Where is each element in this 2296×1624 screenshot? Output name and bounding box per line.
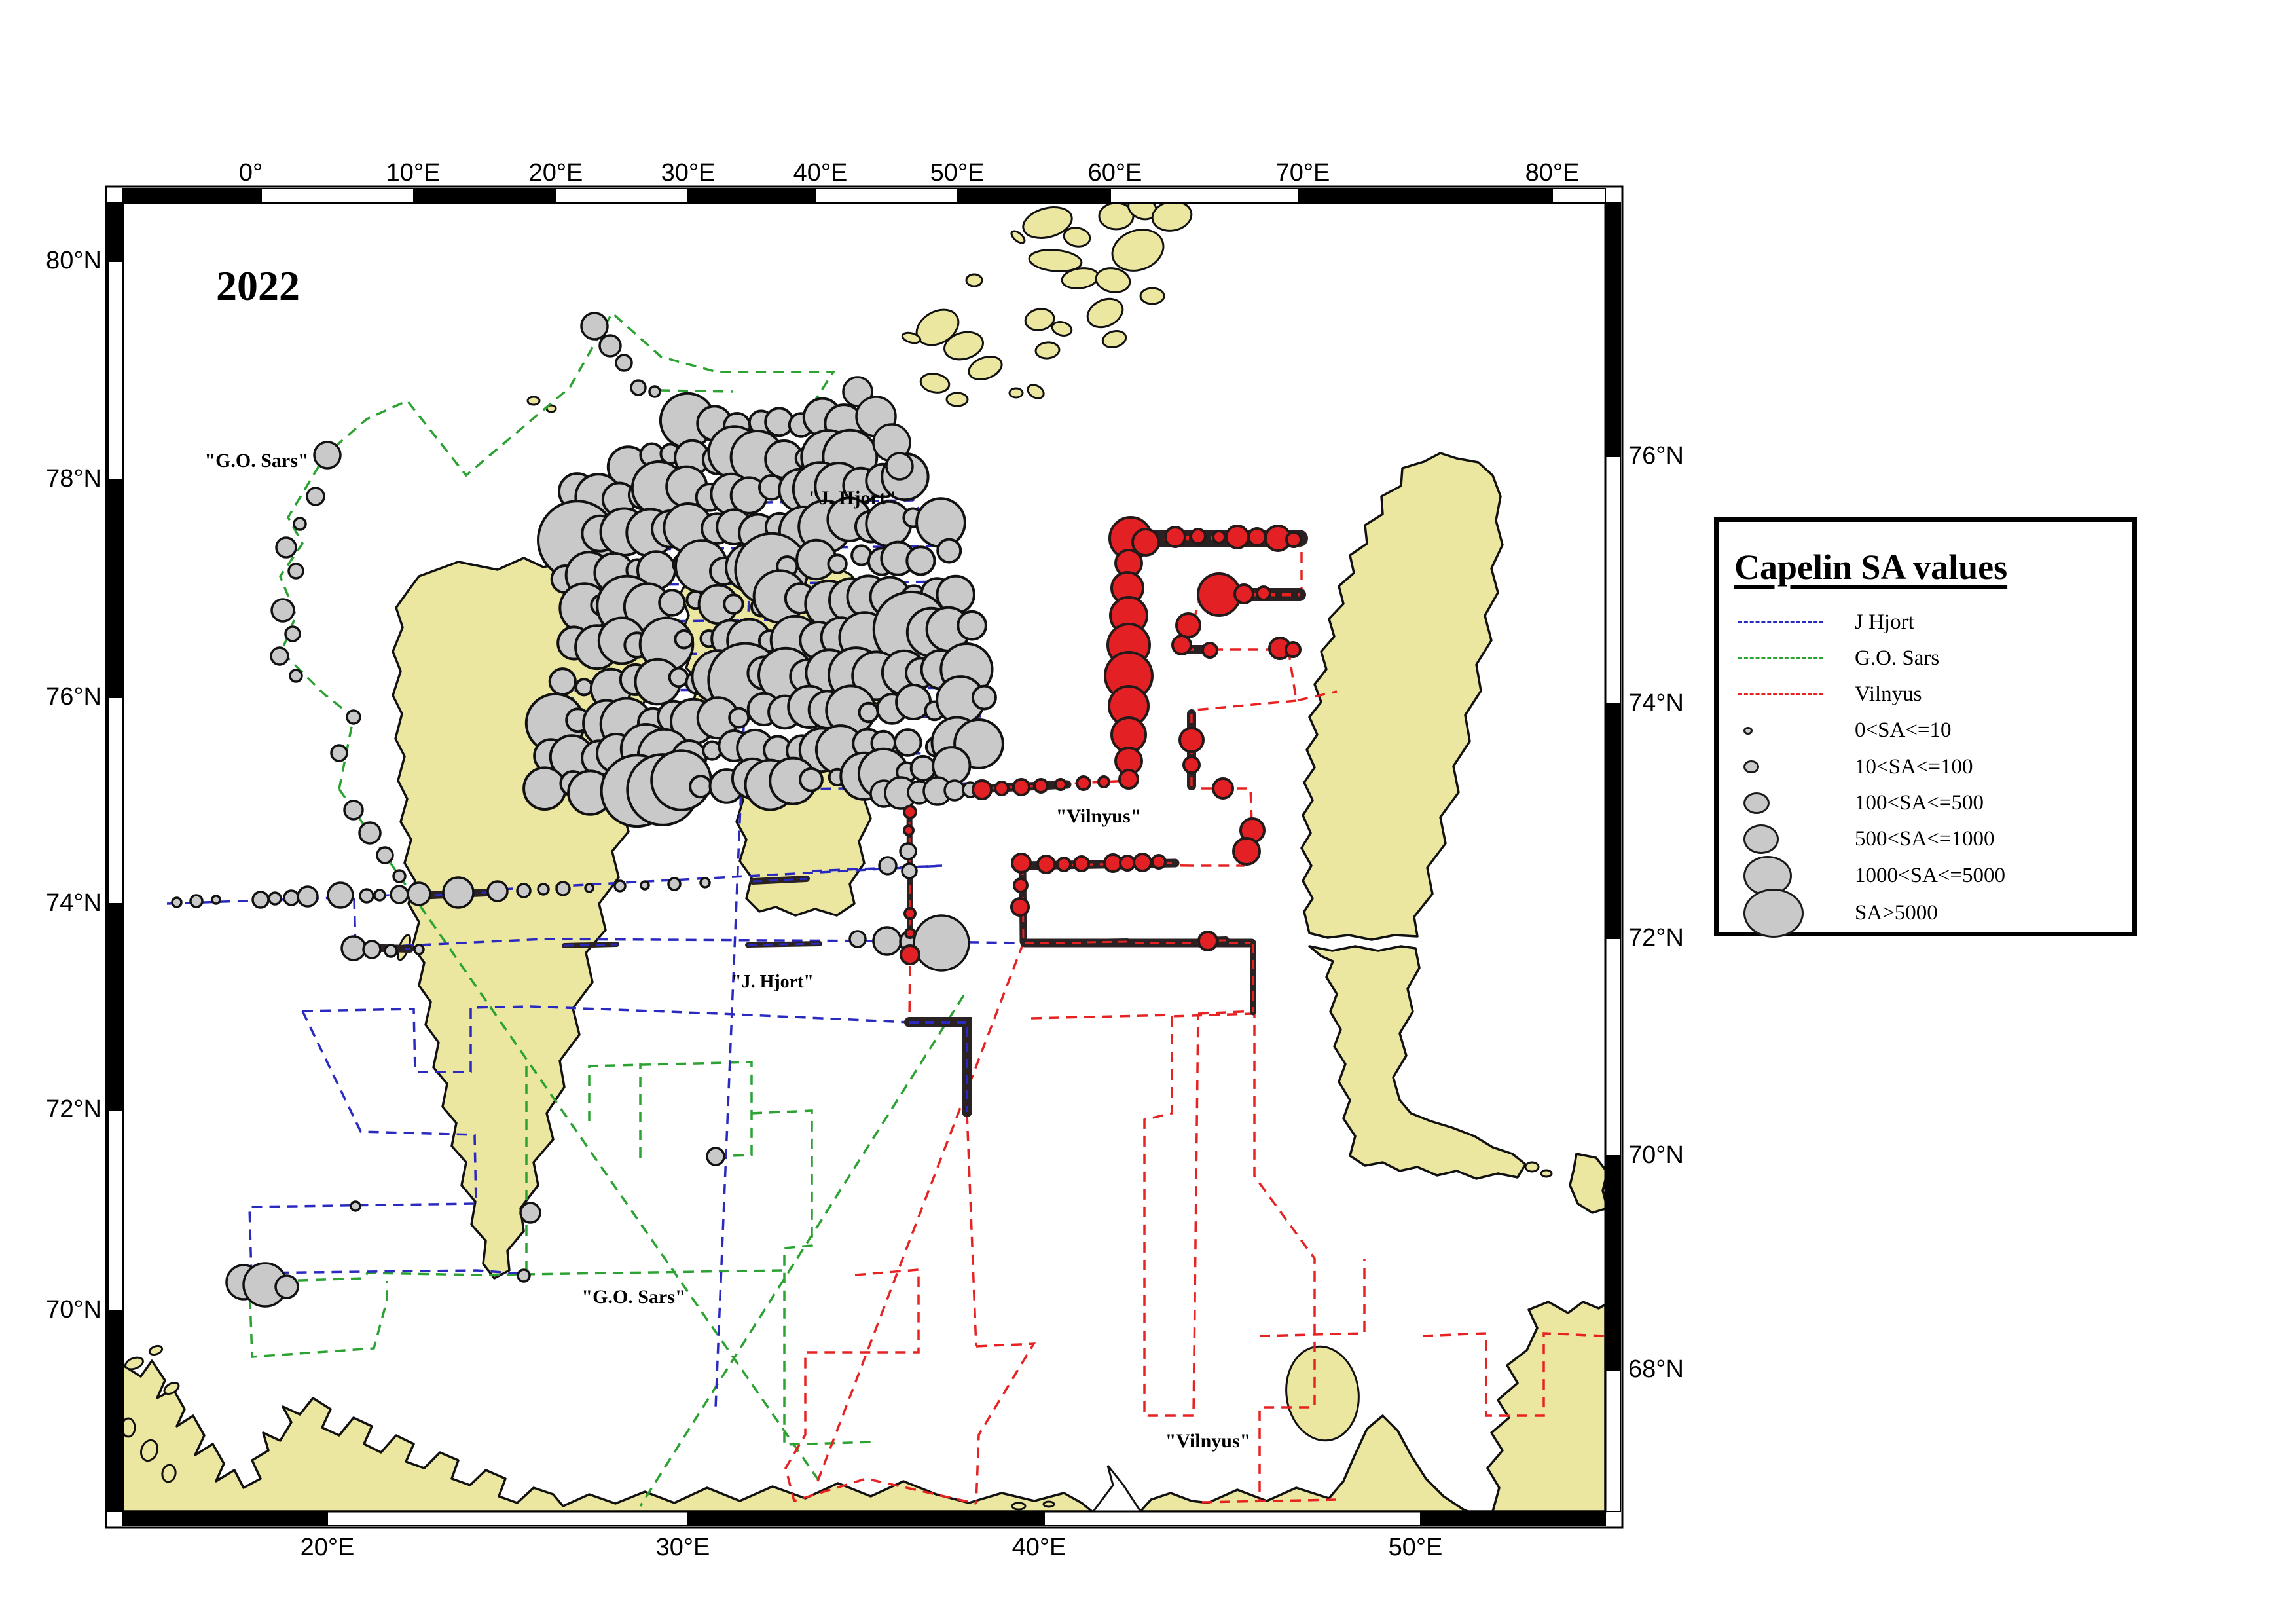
axis-tick-left-78°N: 78°N [46,465,101,493]
sa-bubble-sample [1738,760,1836,773]
sa-bubble [690,776,711,797]
sa-bubble-gray [307,488,324,505]
land-fjl-12 [966,274,982,286]
sa-bubble-red [995,782,1008,795]
legend-item-label: 500<SA<=1000 [1855,827,1995,851]
sa-bubble-red [1077,777,1090,790]
axis-tick-top-80°E: 80°E [1525,159,1580,187]
axis-tick-bottom-20°E: 20°E [301,1534,355,1562]
sa-bubble-gray [581,313,608,339]
axis-tick-left-70°N: 70°N [46,1296,101,1324]
sa-bubble-gray [538,884,549,895]
sa-bubble-gray [850,931,866,947]
sa-bubble-red [1213,531,1225,543]
sa-bubble [659,590,684,615]
sa-bubble-sample [1738,792,1836,814]
sa-bubble [917,498,965,547]
axis-tick-top-70°E: 70°E [1276,159,1330,187]
sa-bubble-gray [631,380,646,395]
sa-bubble-red [1173,636,1191,654]
sa-bubble-red [1199,932,1217,950]
land-isl-n-svalbard-1 [528,397,539,405]
sa-bubble-gray [488,881,507,901]
sa-bubble-red [905,929,915,938]
sa-bubble [524,767,566,809]
land-coast-islet-1 [1012,1503,1025,1509]
sa-bubble [670,669,688,687]
sa-bubble-gray [298,887,318,906]
sa-bubble-red [1120,856,1135,870]
sa-bubble-red [1203,643,1217,657]
axis-tick-left-74°N: 74°N [46,889,101,917]
sa-bubble-gray [879,857,896,874]
year-label: 2022 [216,262,300,310]
sa-bubble-gray [600,335,621,356]
legend-item-sa-2: 10<SA<=100 [1738,749,2132,785]
sa-bubble-gray [272,599,294,621]
sa-bubble [550,669,575,694]
axis-tick-right-72°N: 72°N [1628,924,1684,952]
sa-bubble-gray [902,864,917,878]
sa-bubble-gray [276,1276,298,1298]
axis-tick-top-0°: 0° [239,159,263,187]
sa-bubble-red [1099,777,1109,787]
vessel-label-5: "Vilnyus" [1165,1430,1251,1452]
sa-bubble-gray [641,881,649,889]
sa-bubble-gray [347,710,360,724]
sa-bubble-red [1014,879,1027,892]
sa-bubble-red [1180,728,1203,752]
axis-tick-right-70°N: 70°N [1628,1141,1684,1170]
sa-bubble-gray [363,941,380,958]
sa-bubble-red [1233,838,1260,864]
sa-bubble-gray [360,889,373,902]
sa-bubble-red [973,781,991,799]
axis-tick-top-40°E: 40°E [793,159,848,187]
sa-bubble-gray [900,843,916,859]
sa-bubble-gray [615,881,625,891]
sa-bubble-red [1011,898,1029,915]
sa-bubble-gray [377,847,393,863]
vessel-label-0: "G.O. Sars" [204,450,308,472]
sa-bubble-gray [212,896,220,904]
jhjort-line-sample [1738,621,1836,623]
gosars-line-sample [1738,657,1836,659]
axis-tick-bottom-50°E: 50°E [1389,1534,1443,1562]
sa-bubble-gray [253,892,268,908]
sa-bubble [828,555,846,572]
axis-tick-left-72°N: 72°N [46,1096,101,1124]
sa-bubble [938,540,960,563]
sa-bubble-red [1176,614,1200,637]
land-nz-tail-islet-1 [1525,1162,1539,1172]
sa-bubble-red [1226,526,1248,548]
legend-item-label: 10<SA<=100 [1855,755,1973,779]
legend-item-label: 0<SA<=10 [1855,718,1952,743]
land-nz-tail-islet-2 [1541,1170,1552,1177]
legend-item-label: J Hjort [1855,610,1914,635]
sa-bubble-gray [701,878,710,887]
sa-bubble-red [901,946,919,964]
legend-item-label: 1000<SA<=5000 [1855,864,2005,888]
axis-tick-left-80°N: 80°N [46,247,101,275]
axis-tick-bottom-40°E: 40°E [1012,1534,1066,1562]
legend-title: Capelin SA values [1734,547,2117,587]
axis-tick-right-76°N: 76°N [1628,442,1684,470]
sa-bubble-red [1013,779,1029,795]
sa-bubble-gray [668,878,680,890]
sa-bubble-gray [374,890,385,900]
sa-bubble-gray [331,745,347,761]
sa-bubble-gray [649,386,660,397]
sa-bubble-gray [517,884,530,897]
sa-bubble-gray [290,670,302,682]
vessel-label-1: "J. Hjort" [809,487,897,509]
axis-tick-top-30°E: 30°E [661,159,716,187]
sa-bubble-gray [414,945,424,954]
sa-bubble [973,686,996,709]
sa-bubble-gray [344,801,363,819]
sa-bubble-gray [556,882,570,895]
sa-bubble-gray [443,877,473,908]
legend-item-gosars: G.O. Sars [1738,640,2132,676]
sa-bubble-gray [269,893,281,904]
legend-item-label: SA>5000 [1855,901,1938,925]
legend-item-label: Vilnyus [1855,682,1922,707]
sa-bubble-gray [342,936,365,960]
sa-bubble [958,612,986,640]
vilnyus-line-sample [1738,693,1836,695]
sa-bubble-red [904,806,916,818]
sa-bubble-red [1034,779,1048,792]
sa-bubble-gray [284,891,299,905]
legend-item-jhjort: J Hjort [1738,604,2132,640]
axis-tick-top-20°E: 20°E [529,159,583,187]
sa-bubble-gray [285,627,300,641]
sa-bubble-gray [945,781,964,800]
sa-bubble-gray [393,870,405,882]
sa-bubble-gray [408,883,430,905]
axis-tick-top-10°E: 10°E [386,159,441,187]
land-coast-islet-2 [1044,1502,1054,1507]
sa-bubble-red [1257,587,1270,600]
sa-bubble-red [1152,855,1165,868]
axis-tick-top-50°E: 50°E [930,159,985,187]
track-core-17 [1087,942,1127,942]
sa-bubble-gray [914,915,969,970]
sa-bubble-gray [518,1270,530,1282]
sa-bubble-gray [271,648,288,665]
sa-bubble-gray [289,564,303,578]
sa-bubble [800,769,822,791]
sa-bubble-red [1235,585,1253,603]
sa-bubble [907,547,934,574]
sa-bubble [675,631,693,648]
sa-bubble-gray [873,927,901,955]
vessel-label-3: "J. Hjort" [731,972,814,993]
axis-tick-right-74°N: 74°N [1628,690,1684,718]
sa-bubble-red [904,826,913,835]
vessel-label-4: "G.O. Sars" [581,1286,685,1308]
legend-item-sa-3: 100<SA<=500 [1738,785,2132,821]
sa-bubble-gray [294,518,306,530]
sa-bubble-gray [351,1202,360,1211]
legend-item-label: 100<SA<=500 [1855,791,1984,815]
sa-bubble-gray [385,945,397,957]
sa-bubble-red [1184,757,1199,773]
vessel-label-2: "Vilnyus" [1056,805,1142,828]
sa-bubble-gray [191,895,202,907]
legend-item-sa-6: SA>5000 [1738,895,2132,932]
sa-bubble-sample [1738,889,1836,938]
axis-tick-left-76°N: 76°N [46,683,101,711]
sa-bubble [724,595,742,613]
sa-bubble-gray [707,1148,724,1165]
sa-bubble-gray [616,355,632,371]
sa-bubble-gray [520,1203,540,1223]
map-content [122,193,1607,1511]
sa-bubble-red [1191,529,1205,544]
sa-bubble-gray [585,884,593,892]
sa-bubble-red [1057,858,1070,871]
sa-bubble [576,679,592,695]
sa-bubble-red [1286,532,1301,547]
axis-tick-top-60°E: 60°E [1088,159,1142,187]
sa-bubble-red [1248,528,1266,545]
sa-bubble-gray [314,442,340,468]
land-fjl-10 [1140,288,1164,304]
sa-bubble-gray [359,822,380,843]
legend-box: Capelin SA values J Hjort G.O. Sars Viln… [1714,517,2137,936]
legend-item-label: G.O. Sars [1855,646,1939,671]
sa-bubble-red [905,908,915,919]
legend-item-sa-4: 500<SA<=1000 [1738,821,2132,857]
legend-item-sa-1: 0<SA<=10 [1738,712,2132,748]
sa-bubble-red [1012,854,1030,872]
sa-bubble [911,756,936,781]
sa-bubble-sample [1738,727,1836,735]
land-fjl-23 [1010,388,1023,397]
sa-bubble-red [1074,857,1089,871]
legend-item-vilnyus: Vilnyus [1738,676,2132,712]
sa-bubble-red [1055,779,1066,790]
sa-bubble-red [1134,854,1151,871]
sa-bubble-gray [328,883,353,908]
sa-bubble [860,703,878,722]
axis-tick-right-68°N: 68°N [1628,1356,1684,1384]
sa-bubble-gray [172,898,181,907]
sa-bubble-gray [886,453,913,479]
sa-bubble-red [1286,642,1300,657]
sa-bubble-gray [391,886,408,903]
figure-canvas: 2022 "G.O. Sars""J. Hjort""Vilnyus""J. H… [0,0,2296,1624]
sa-bubble-gray [276,538,296,557]
sa-bubble-red [1120,770,1138,788]
sa-bubble [729,709,748,728]
sa-bubble-red [1038,856,1055,873]
sa-bubble [895,729,921,756]
sa-bubble-red [1213,779,1233,798]
sa-bubble-sample [1738,824,1836,853]
axis-tick-bottom-30°E: 30°E [656,1534,710,1562]
land-fjl-17 [947,393,968,406]
sa-bubble-red [1165,527,1185,547]
